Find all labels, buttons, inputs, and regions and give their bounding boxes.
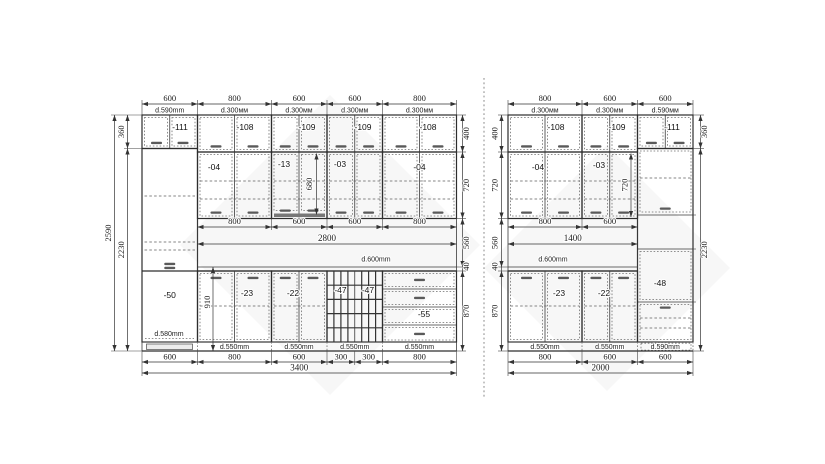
cabinet-109r: -109 xyxy=(582,115,638,152)
dim-text: 400 xyxy=(461,127,471,140)
cabinet-code: -108 xyxy=(419,122,436,132)
dim-text: 800 xyxy=(228,93,241,103)
right-bottom-labels: d.550mm d.550mm d.590mm xyxy=(508,342,693,351)
cabinet-code: -109 xyxy=(354,122,371,132)
cabinet-108r: -108 xyxy=(508,115,582,152)
dim-text: 300 xyxy=(362,352,375,362)
dim-text: 600 xyxy=(603,352,616,362)
left-top-dimensions: 600 800 600 600 800 d.590mm d.300мм d.30… xyxy=(142,93,457,115)
dim-text: 600 xyxy=(163,352,176,362)
dim-text: 600 xyxy=(603,216,616,226)
dim-text: 600 xyxy=(163,93,176,103)
dim-text: 600 xyxy=(293,93,306,103)
depth-label: d.300мм xyxy=(596,108,623,115)
cabinet-code: -23 xyxy=(241,288,254,298)
depth-label: d.600mm xyxy=(538,257,567,264)
dim-text: 560 xyxy=(490,236,500,249)
dim-text: 800 xyxy=(539,93,552,103)
depth-label: d.300мм xyxy=(531,108,558,115)
dim-text: 360 xyxy=(699,125,709,138)
right-top-dimensions: 800 600 600 d.300мм d.300мм d.590мм xyxy=(508,93,693,115)
depth-label: d.580mm xyxy=(154,331,183,338)
dim-text: 560 xyxy=(461,236,471,249)
dim-text: 870 xyxy=(490,305,500,318)
cabinet-code: -04 xyxy=(532,162,545,172)
dim-text: 600 xyxy=(293,216,306,226)
dim-text: 800 xyxy=(413,352,426,362)
cabinet-code: -04 xyxy=(413,162,426,172)
dim-text: 600 xyxy=(659,352,672,362)
cabinet-code: -47 xyxy=(362,285,375,295)
dim-text: 600 xyxy=(348,216,361,226)
cabinet-code: -111 xyxy=(664,122,680,132)
dim-text: 1400 xyxy=(564,233,583,243)
dim-text: 800 xyxy=(539,216,552,226)
dim-text: 600 xyxy=(603,93,616,103)
dim-text: 40 xyxy=(490,262,500,271)
cabinet-code: -03 xyxy=(593,160,606,170)
depth-label: d.550mm xyxy=(405,344,434,351)
cabinet-108b: -108 xyxy=(383,115,457,152)
depth-label: d.300мм xyxy=(406,108,433,115)
dim-text: 2000 xyxy=(592,363,611,373)
cabinet-111r: -111 xyxy=(638,115,694,149)
right-upper-cabinets: -108 -109 -111 xyxy=(508,115,693,152)
cabinet-code: -109 xyxy=(608,122,625,132)
depth-label: d.600mm xyxy=(361,257,390,264)
cabinet-code: -109 xyxy=(298,122,315,132)
depth-label: d.300мм xyxy=(341,108,368,115)
dim-text: 720 xyxy=(461,179,471,192)
cabinet-code: -22 xyxy=(287,288,300,298)
cabinet-code: -48 xyxy=(654,278,667,288)
cabinet-code: -13 xyxy=(278,159,291,169)
depth-label: d.590мм xyxy=(652,108,679,115)
technical-drawing-canvas: 600 800 600 600 800 d.590mm d.300мм d.30… xyxy=(0,0,825,464)
cabinet-code: -108 xyxy=(547,122,564,132)
cabinet-code: -03 xyxy=(334,159,347,169)
dim-text: 800 xyxy=(413,93,426,103)
vent-grille xyxy=(147,344,193,350)
depth-label: d.300мм xyxy=(285,108,312,115)
dim-text: 800 xyxy=(413,216,426,226)
depth-label: d.300мм xyxy=(221,108,248,115)
depth-label: d.550mm xyxy=(530,344,559,351)
cabinet-code: -04 xyxy=(208,162,221,172)
dim-text: 720 xyxy=(490,179,500,192)
dim-text: 2590 xyxy=(103,225,113,242)
cabinet-code: -47 xyxy=(334,285,347,295)
depth-label: d.590mm xyxy=(651,344,680,351)
kitchen-elevation-drawing: 600 800 600 600 800 d.590mm d.300мм d.30… xyxy=(0,0,825,464)
left-bottom-dimensions: 600 800 600 300 300 800 3400 xyxy=(142,351,457,376)
dim-text: 600 xyxy=(659,93,672,103)
dim-text: 2230 xyxy=(699,241,709,258)
cabinet-code: -55 xyxy=(418,309,431,319)
depth-label: d.590mm xyxy=(155,108,184,115)
dim-text: 800 xyxy=(228,216,241,226)
dim-text: 360 xyxy=(116,125,126,138)
watermark-diamonds xyxy=(180,95,730,395)
dim-text: 600 xyxy=(348,93,361,103)
dim-text: 600 xyxy=(293,352,306,362)
cabinet-code: -50 xyxy=(164,290,177,300)
dim-text: 800 xyxy=(228,352,241,362)
left-upper-cabinets: -111 -108 -109 -109 -108 xyxy=(142,115,457,152)
dim-text: 40 xyxy=(461,262,471,271)
depth-label: d.550mm xyxy=(220,344,249,351)
cabinet-108: -108 xyxy=(198,115,272,152)
cabinet-code: -111 xyxy=(172,122,188,132)
dim-text: 300 xyxy=(335,352,348,362)
cabinet-code: -22 xyxy=(598,288,611,298)
dim-text: 400 xyxy=(490,127,500,140)
depth-label: d.550mm xyxy=(284,344,313,351)
depth-label: d.550mm xyxy=(595,344,624,351)
dim-text: 910 xyxy=(202,296,212,309)
dim-text: 870 xyxy=(461,305,471,318)
cabinet-111: -111 xyxy=(142,115,198,149)
dim-text: 680 xyxy=(304,178,314,191)
cabinet-code: -108 xyxy=(236,122,253,132)
dim-text: 800 xyxy=(539,352,552,362)
dim-text: 720 xyxy=(620,179,630,192)
depth-label: d.550mm xyxy=(340,344,369,351)
dim-text: 3400 xyxy=(290,363,309,373)
cabinet-code: -23 xyxy=(553,288,566,298)
dim-text: 2800 xyxy=(318,233,337,243)
dim-text: 2230 xyxy=(116,241,126,258)
